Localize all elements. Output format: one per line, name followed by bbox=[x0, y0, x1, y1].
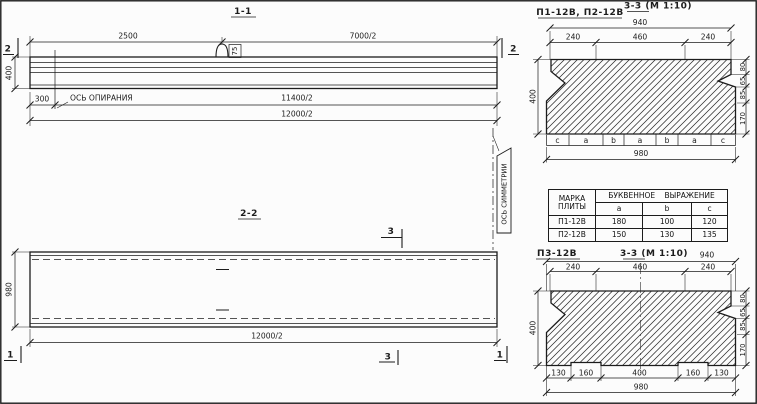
center-mark-dashes bbox=[216, 270, 229, 311]
section-2-2-view: 2-2 980 12000/2 3 3 1 1 bbox=[4, 209, 507, 365]
dim-85: 85 bbox=[739, 322, 747, 331]
cell-a: 150 bbox=[596, 229, 643, 242]
dim-240-right: 240 bbox=[701, 33, 716, 42]
cut-marker-2-right: 2 bbox=[502, 38, 519, 58]
cut-marker-label: 3 bbox=[388, 227, 395, 237]
seg-letter-b2: b bbox=[665, 136, 670, 145]
dim-400: 400 bbox=[529, 89, 538, 104]
cut-marker-2-left: 2 bbox=[3, 38, 18, 58]
dim-980: 980 bbox=[5, 282, 14, 297]
symmetry-axis-label: ОСЬ СИММЕТРИИ bbox=[501, 163, 509, 224]
dim-80: 80 bbox=[739, 294, 747, 303]
dim-240-left: 240 bbox=[566, 33, 581, 42]
cell-b: 100 bbox=[643, 216, 692, 229]
seg-letter-c2: c bbox=[721, 136, 725, 145]
dim-940: 940 bbox=[700, 251, 715, 260]
dim-240-left: 240 bbox=[566, 263, 581, 272]
seg-letter-a3: a bbox=[692, 136, 697, 145]
cell-b: 130 bbox=[643, 229, 692, 242]
dim-11400-2: 11400/2 bbox=[281, 94, 313, 103]
section-2-2-title: 2-2 bbox=[240, 209, 258, 219]
cell-mark: П1-12В bbox=[549, 216, 596, 229]
dim-12000-2: 12000/2 bbox=[281, 110, 313, 119]
dim-460: 460 bbox=[633, 263, 648, 272]
plate-mark-label: П3-12В bbox=[537, 249, 577, 259]
table-col-b: b bbox=[643, 203, 692, 216]
seg-letter-a2: a bbox=[638, 136, 643, 145]
letter-values-table: МАРКА ПЛИТЫ БУКВЕННОЕ ВЫРАЖЕНИЕ a b c П1… bbox=[548, 189, 728, 242]
dim-160-left: 160 bbox=[579, 369, 594, 378]
dim-980: 980 bbox=[634, 149, 649, 158]
cut-marker-label: 2 bbox=[510, 45, 517, 55]
section-3-3-title: 3-3 (М 1:10) bbox=[624, 2, 692, 12]
plate-marks-label: П1-12В, П2-12В bbox=[536, 8, 623, 18]
lifting-loop bbox=[216, 44, 228, 57]
cut-marker-label: 2 bbox=[5, 45, 12, 55]
table-row: П2-12В 150 130 135 bbox=[549, 229, 728, 242]
dim-240-right: 240 bbox=[701, 263, 716, 272]
dim-170: 170 bbox=[739, 344, 747, 357]
table-header-mark-line2: ПЛИТЫ bbox=[550, 203, 594, 211]
cell-c: 135 bbox=[692, 229, 728, 242]
hatched-cross-section bbox=[547, 60, 736, 135]
cell-c: 120 bbox=[692, 216, 728, 229]
table-header-group: БУКВЕННОЕ ВЫРАЖЕНИЕ bbox=[596, 190, 728, 203]
seg-letter-c1: c bbox=[555, 136, 559, 145]
dim-460: 460 bbox=[633, 33, 648, 42]
hidden-edge-dashed-lines bbox=[32, 260, 495, 319]
dim-300: 300 bbox=[35, 95, 50, 104]
dim-170: 170 bbox=[739, 112, 747, 125]
table-col-c: c bbox=[692, 203, 728, 216]
dim-2500: 2500 bbox=[118, 32, 137, 41]
extension-lines bbox=[12, 36, 497, 126]
cell-a: 180 bbox=[596, 216, 643, 229]
table-col-a: a bbox=[596, 203, 643, 216]
cut-marker-1-right: 1 bbox=[494, 346, 507, 363]
cut-marker-label: 3 bbox=[385, 353, 392, 363]
section-1-1-title: 1-1 bbox=[234, 7, 252, 17]
dim-940: 940 bbox=[633, 18, 648, 27]
blueprint-sheet: 1-1 75 2500 7000/2 400 300 ОСЬ ОПИРАНИЯ … bbox=[0, 0, 757, 404]
loop-dim-label: 75 bbox=[231, 47, 239, 56]
cut-marker-label: 1 bbox=[7, 351, 14, 361]
dim-12000-2: 12000/2 bbox=[251, 332, 283, 341]
dimension-lines bbox=[15, 252, 497, 343]
dim-7000-2: 7000/2 bbox=[350, 32, 377, 41]
section-3-3-bottom-view: П3-12В 3-3 (М 1:10) 940 240 460 240 400 … bbox=[529, 249, 750, 396]
dim-980: 980 bbox=[634, 383, 649, 392]
symmetry-axis-flag: ОСЬ СИММЕТРИИ bbox=[493, 128, 511, 250]
section-3-3-top-view: П1-12В, П2-12В 3-3 (М 1:10) 940 240 460 … bbox=[529, 2, 750, 163]
cut-marker-3-top: 3 bbox=[381, 227, 402, 248]
seg-letter-b1: b bbox=[611, 136, 616, 145]
support-axis-label: ОСЬ ОПИРАНИЯ bbox=[70, 94, 133, 103]
flag-leader-line bbox=[493, 136, 499, 151]
table-header-mark: МАРКА ПЛИТЫ bbox=[549, 190, 596, 216]
cell-mark: П2-12В bbox=[549, 229, 596, 242]
plan-edge-lines bbox=[30, 256, 497, 324]
table-row: П1-12В 180 100 120 bbox=[549, 216, 728, 229]
plate-plan-outline bbox=[30, 252, 497, 327]
cut-marker-1-left: 1 bbox=[4, 346, 21, 363]
dim-85: 85 bbox=[739, 91, 747, 100]
section-3-3-title: 3-3 (М 1:10) bbox=[620, 249, 688, 259]
dim-130-left: 130 bbox=[551, 369, 566, 378]
dim-160-right: 160 bbox=[686, 369, 701, 378]
section-1-1-view: 1-1 75 2500 7000/2 400 300 ОСЬ ОПИРАНИЯ … bbox=[3, 7, 519, 126]
seg-letter-a1: a bbox=[584, 136, 589, 145]
cut-marker-label: 1 bbox=[497, 351, 504, 361]
cut-marker-3-bottom: 3 bbox=[379, 350, 398, 365]
dim-400: 400 bbox=[5, 66, 14, 81]
dim-80: 80 bbox=[739, 63, 747, 72]
dim-130-right: 130 bbox=[714, 369, 729, 378]
plate-profile-lines bbox=[30, 63, 497, 86]
dim-400-mid: 400 bbox=[632, 369, 647, 378]
hatched-cross-section bbox=[547, 291, 736, 366]
dim-400: 400 bbox=[529, 321, 538, 336]
dimension-lines bbox=[15, 42, 497, 121]
